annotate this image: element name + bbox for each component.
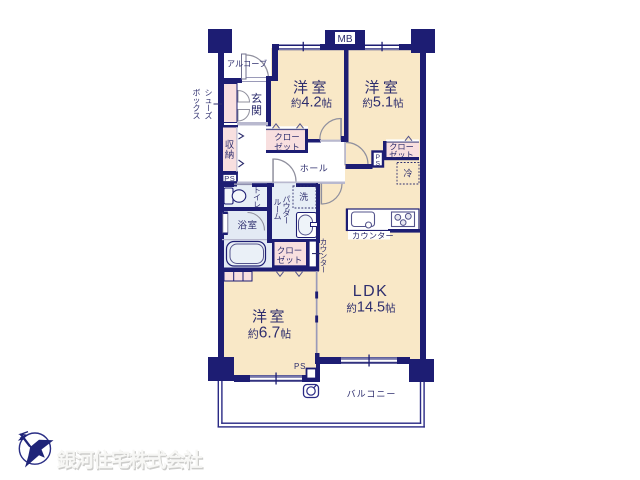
svg-text:PS: PS [294,362,306,371]
svg-text:クロー: クロー [274,132,300,142]
svg-text:アルコーブ: アルコーブ [227,59,267,69]
svg-text:LDK: LDK [353,283,389,300]
svg-text:ス: ス [193,112,201,121]
svg-text:ホール: ホール [300,164,329,174]
svg-text:ゼット: ゼット [277,255,303,265]
svg-text:MB: MB [338,34,353,45]
svg-text:約5.1帖: 約5.1帖 [362,95,404,111]
svg-text:ズ: ズ [205,111,213,121]
svg-text:S: S [376,161,381,168]
svg-text:冷: 冷 [403,168,412,179]
svg-text:ゼット: ゼット [274,142,300,152]
svg-text:納: 納 [225,149,235,161]
svg-text:収: 収 [225,139,235,151]
svg-text:ー: ー [282,216,291,224]
svg-text:ー: ー [319,266,328,273]
svg-text:バルコニー: バルコニー [347,389,397,399]
svg-text:レ: レ [253,201,261,210]
svg-text:ゼット: ゼット [389,150,414,160]
svg-text:洋室: 洋室 [252,309,287,326]
svg-text:浴室: 浴室 [237,220,257,232]
svg-text:洗: 洗 [299,191,308,202]
svg-text:約14.5帖: 約14.5帖 [346,300,396,316]
svg-text:ム: ム [274,212,282,221]
svg-text:PS: PS [224,174,235,183]
svg-text:玄: 玄 [251,91,262,105]
svg-text:関: 関 [251,104,262,117]
svg-text:カウンター: カウンター [352,231,394,240]
svg-text:約4.2帖: 約4.2帖 [291,95,333,111]
svg-text:銀河住宅株式会社: 銀河住宅株式会社 [57,448,204,471]
svg-text:クロー: クロー [277,246,303,256]
